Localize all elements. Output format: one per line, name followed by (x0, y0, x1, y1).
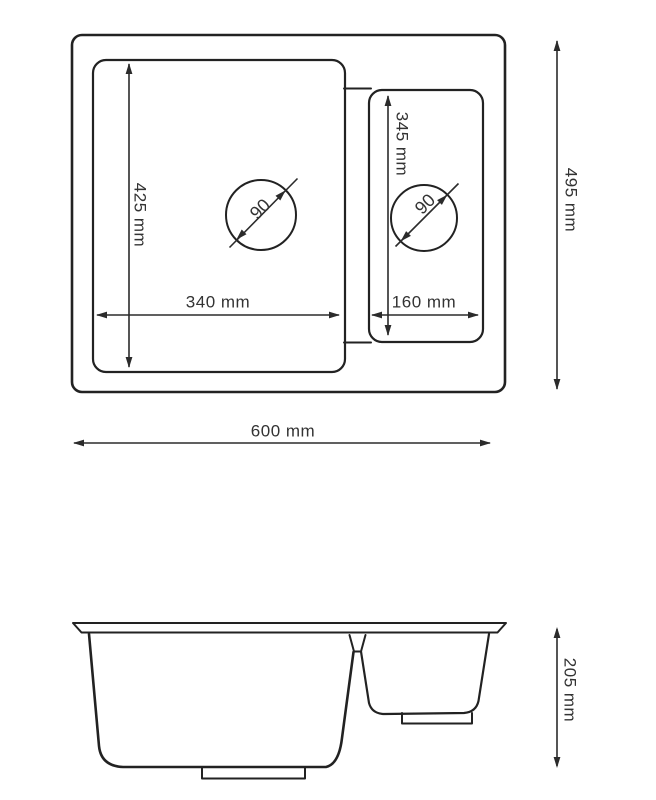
arrowhead-right (329, 312, 340, 319)
side-small-bowl-profile (361, 634, 489, 714)
sink-top-view: 90 90 425 mm 34 (72, 35, 581, 446)
bowl-ledge-connector-lines (344, 89, 371, 343)
side-main-drain-flange (202, 768, 305, 779)
side-main-bowl-profile (89, 634, 354, 767)
technical-drawing-canvas: 90 90 425 mm 34 (0, 0, 656, 800)
small-drain-diameter-label: 90 (411, 190, 439, 218)
side-rim-outline (73, 623, 506, 633)
overall-width-dimension: 600 mm (73, 422, 491, 447)
overall-depth-label: 495 mm (562, 168, 581, 232)
sink-drawing-svg: 90 90 425 mm 34 (0, 0, 656, 800)
arrowhead-left (73, 440, 84, 447)
main-bowl-depth-dimension: 425 mm (126, 63, 150, 368)
sink-side-view: 205 mm (73, 623, 580, 779)
small-bowl-width-label: 160 mm (392, 293, 456, 312)
small-drain-diameter-dimension: 90 (396, 184, 459, 247)
arrowhead-right (480, 440, 491, 447)
arrowhead-down (554, 757, 561, 768)
small-bowl-depth-label: 345 mm (393, 112, 412, 176)
side-bowl-divider (350, 635, 366, 652)
arrowhead-up (126, 63, 133, 74)
side-height-label: 205 mm (561, 658, 580, 722)
arrowhead-down (126, 357, 133, 368)
arrowhead-right (468, 312, 479, 319)
arrowhead-left (96, 312, 107, 319)
arrowhead-down (554, 379, 561, 390)
overall-depth-dimension: 495 mm (554, 40, 581, 390)
arrowhead-left (371, 312, 382, 319)
side-height-dimension: 205 mm (554, 627, 580, 768)
main-bowl-depth-label: 425 mm (131, 183, 150, 247)
overall-width-label: 600 mm (251, 422, 315, 441)
arrowhead-down (385, 325, 392, 336)
arrowhead-up (385, 95, 392, 106)
arrowhead-up (554, 627, 561, 638)
main-bowl-width-label: 340 mm (186, 293, 250, 312)
main-bowl-width-dimension: 340 mm (96, 293, 340, 319)
main-drain-diameter-label: 90 (246, 195, 274, 223)
arrowhead-up (554, 40, 561, 51)
